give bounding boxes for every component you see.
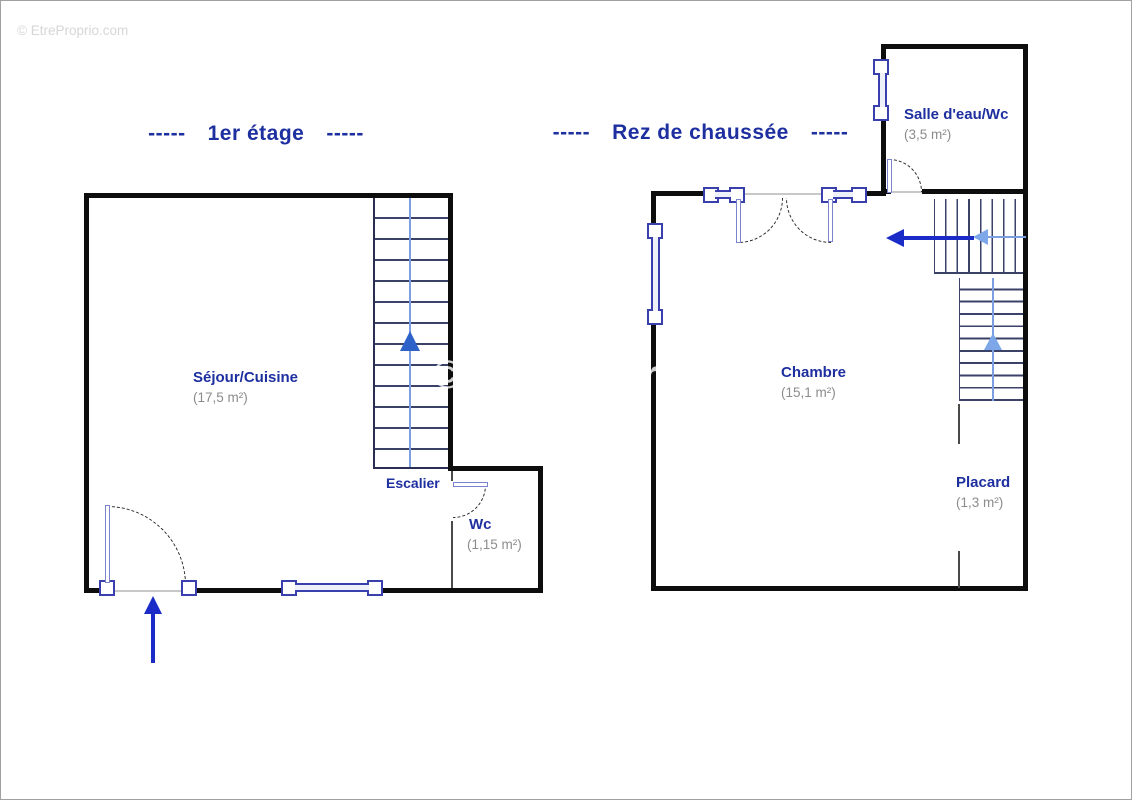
ground-floor-title-text: Rez de chaussée [612,121,789,145]
window-chambre-top-left [715,190,731,199]
entrance-arrow-shaft [151,613,155,663]
salle-eau-room-name: Salle d'eau/Wc [904,104,1008,126]
wc-room-area: (1,15 m²) [467,536,522,555]
placard-partition-lower [958,551,960,588]
ground-floor-plan: ----- Rez de chaussée ----- [601,1,1132,800]
sejour-room-area: (17,5 m²) [193,389,298,408]
first-floor-plan: ----- 1er étage ----- Escalier Wc (1,15 … [1,1,601,800]
wc-door-leaf [453,482,488,487]
window-chambre-left [651,237,660,311]
chambre-left-wall-lower [651,325,656,589]
title-dashes-right: ----- [326,122,363,146]
wall-top [84,193,453,198]
floor-plan-image: © EtreProprio.com © EtreProprio ----- 1e… [0,0,1132,800]
placard-room-area: (1,3 m²) [956,494,1010,513]
window-salle-eau [878,73,887,107]
wall-bottom-seg2 [189,588,286,593]
first-floor-title: ----- 1er étage ----- [106,122,406,146]
entrance-door-jamb-post [181,580,197,596]
double-door-threshold [745,193,825,195]
window-post [873,105,889,121]
chambre-room-name: Chambre [781,362,846,384]
watermark-top-left: © EtreProprio.com [17,23,128,38]
chambre-room-label: Chambre (15,1 m²) [781,362,846,403]
wc-room-label: Wc (1,15 m²) [469,514,522,555]
title-dashes-right: ----- [811,121,848,145]
stair-direction-up-arrow-icon [400,331,420,351]
escalier-label: Escalier [386,475,440,491]
stair-direction-left-arrow-icon [973,229,988,245]
wall-bottom-seg3 [381,588,543,593]
exit-arrow-shaft [902,236,974,240]
sejour-room-label: Séjour/Cuisine (17,5 m²) [193,367,298,408]
chambre-room-area: (15,1 m²) [781,384,846,403]
title-dashes-left: ----- [148,122,185,146]
first-floor-title-text: 1er étage [208,122,305,146]
window-post [367,580,383,596]
chambre-top-wall-seg2 [865,191,886,196]
wc-right-wall [538,466,543,593]
wc-room-name: Wc [469,514,522,536]
window-bottom [295,583,369,592]
wall-bottom [651,586,1028,591]
placard-room-label: Placard (1,3 m²) [956,472,1010,513]
double-door-left-leaf [736,199,741,243]
salle-eau-room-label: Salle d'eau/Wc (3,5 m²) [904,104,1008,145]
entrance-arrow-icon [144,596,162,614]
wall-left [84,193,89,593]
wall-right [448,193,453,471]
stair-direction-up-arrow-icon [984,333,1002,350]
entrance-door-leaf [105,505,110,583]
wall-right [1023,44,1028,591]
salle-eau-door-leaf [887,159,892,193]
ground-floor-title: ----- Rez de chaussée ----- [513,121,888,145]
wc-top-wall [448,466,543,471]
salle-eau-room-area: (3,5 m²) [904,126,1008,145]
double-door-right-leaf [828,199,833,242]
window-chambre-top-right [833,190,853,199]
chambre-top-wall-seg1 [651,191,705,196]
window-post [851,187,867,203]
salle-eau-top-wall [881,44,1028,49]
title-dashes-left: ----- [553,121,590,145]
salle-eau-bottom-wall [922,189,1028,194]
placard-partition-upper [958,404,960,444]
placard-room-name: Placard [956,472,1010,494]
entrance-threshold-line [104,590,189,592]
wc-partition-upper [451,471,453,481]
wc-partition-lower [451,521,453,588]
sejour-room-name: Séjour/Cuisine [193,367,298,389]
window-post [647,309,663,325]
